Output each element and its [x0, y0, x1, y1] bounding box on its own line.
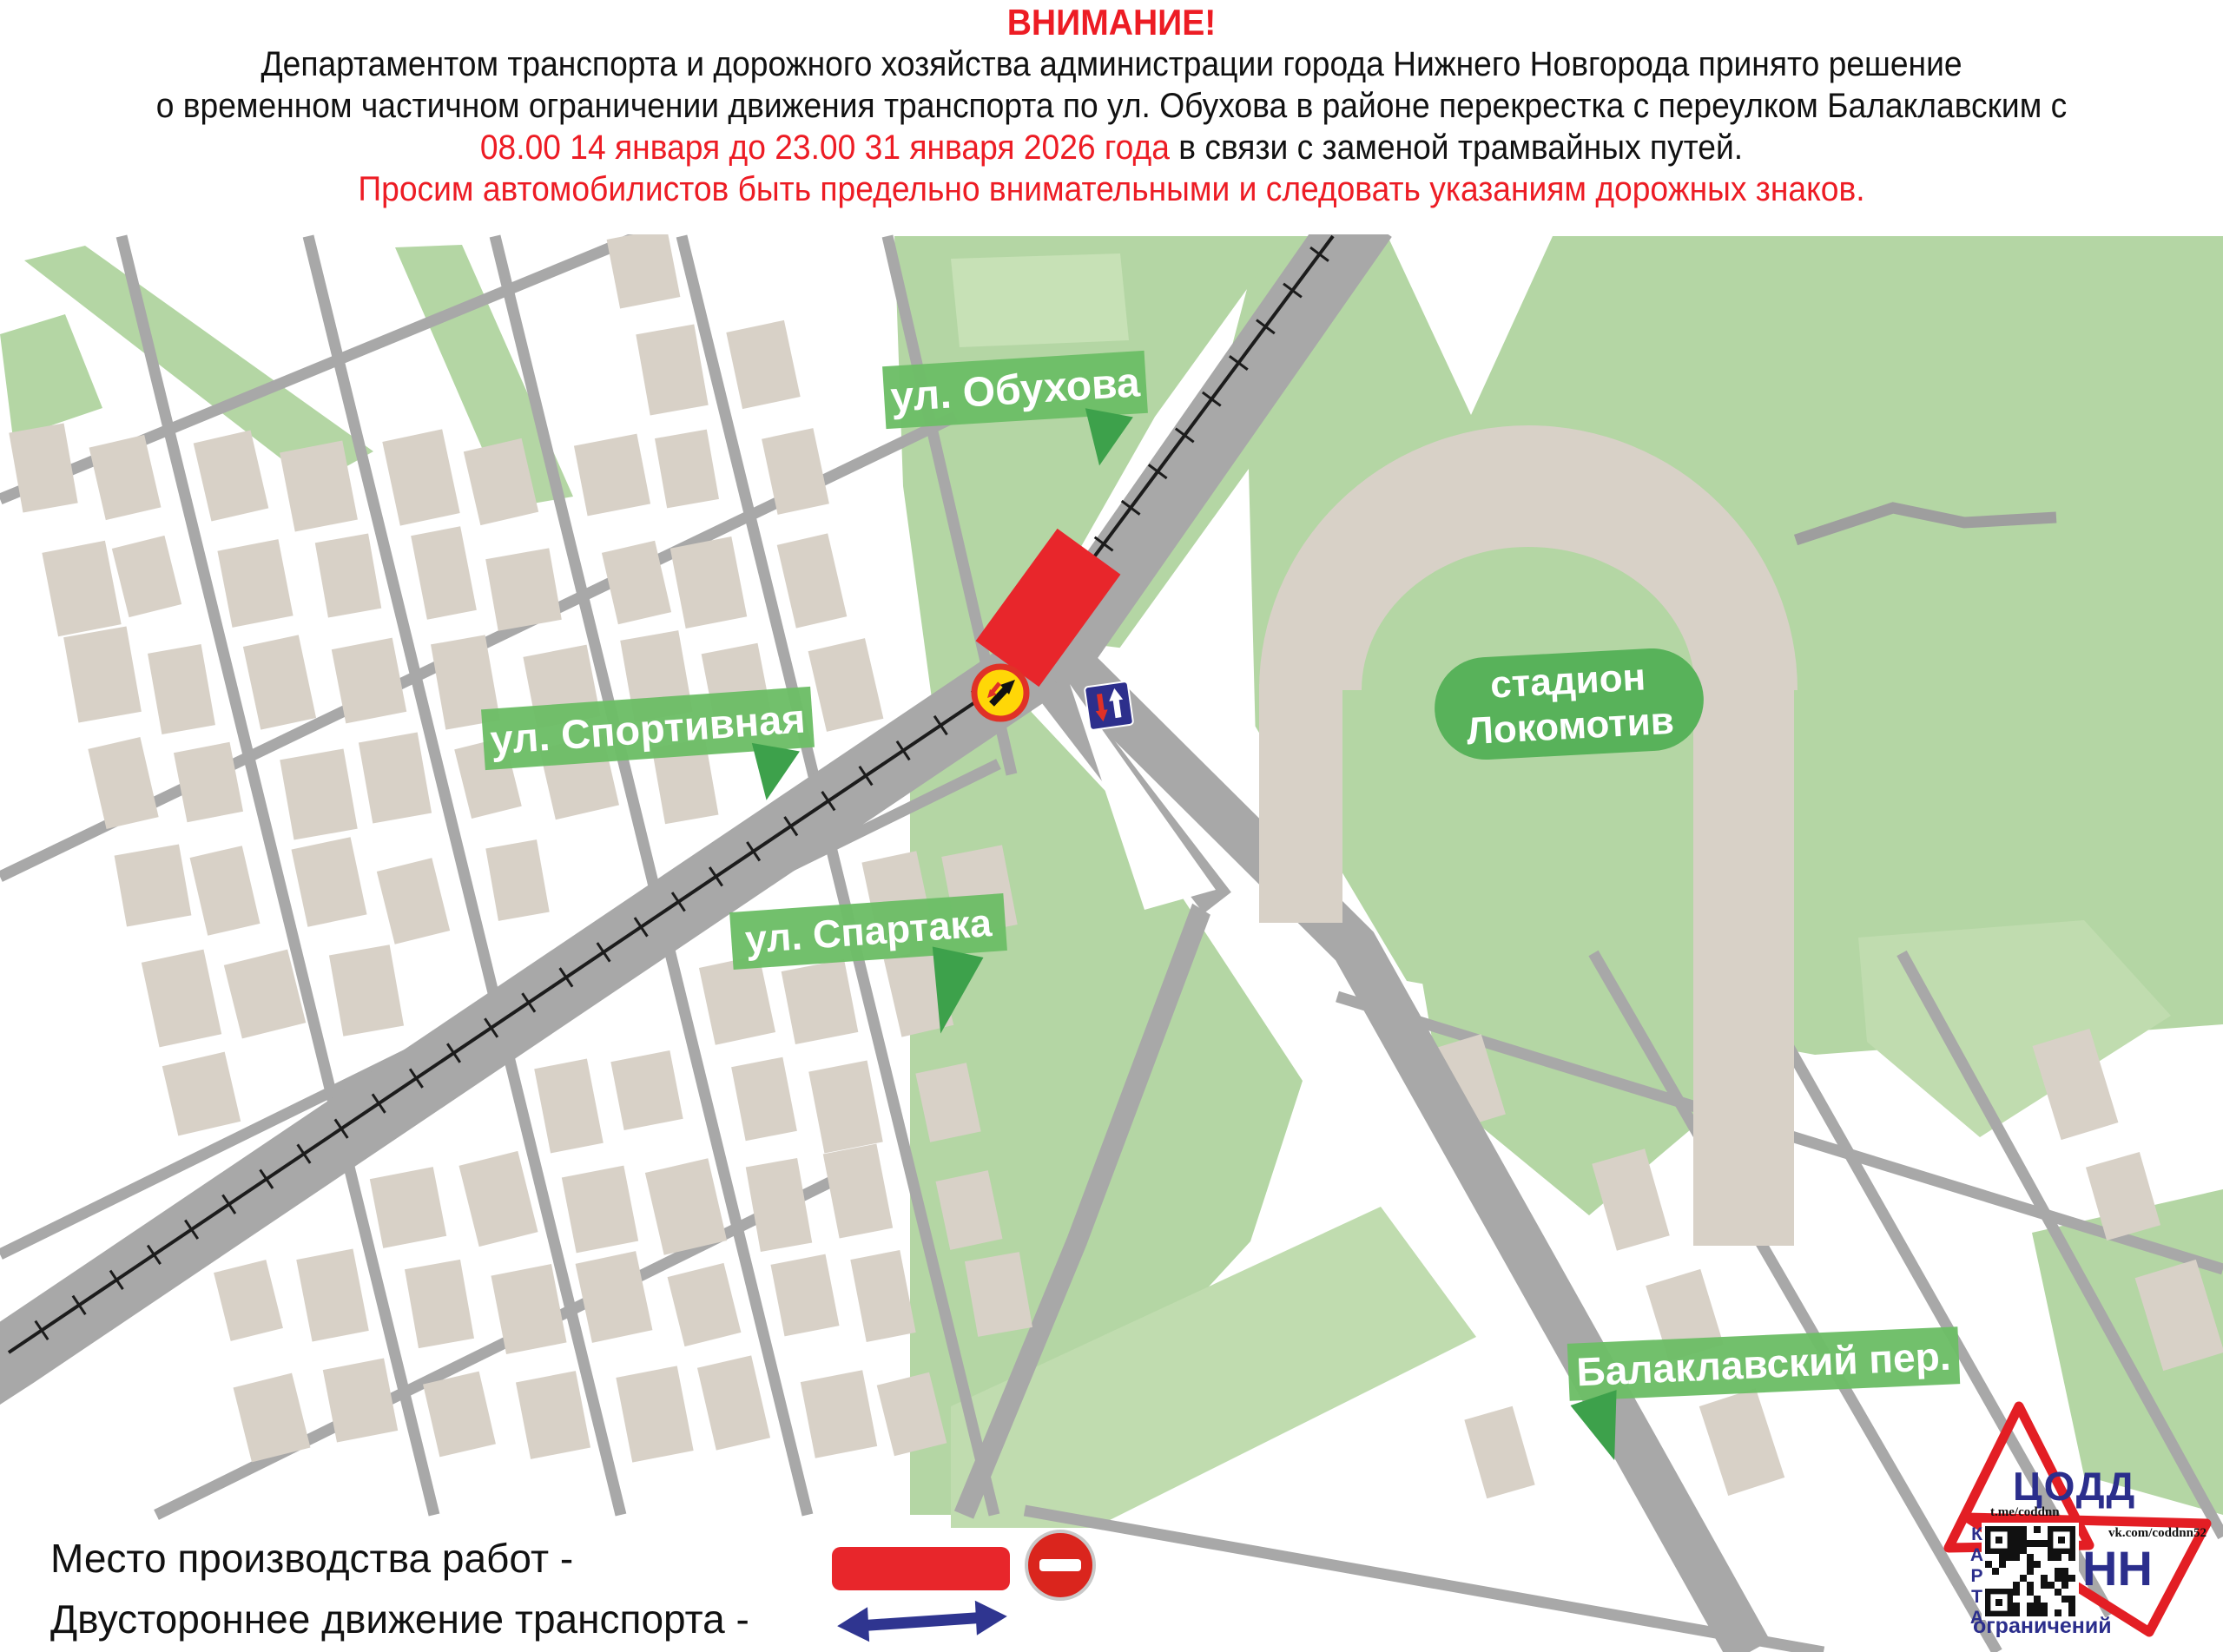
logo-city-text: НН [2082, 1541, 2153, 1596]
qr-module [2055, 1575, 2061, 1582]
building [291, 837, 366, 927]
poster: ВНИМАНИЕ! Департаментом транспорта и дор… [0, 0, 2223, 1652]
building [697, 1355, 770, 1450]
qr-module [2013, 1533, 2020, 1540]
building [115, 845, 192, 927]
building [142, 950, 221, 1048]
building [359, 733, 432, 824]
qr-module [2027, 1603, 2034, 1609]
building [770, 1254, 839, 1337]
building [423, 1372, 496, 1458]
qr-module [2020, 1547, 2027, 1554]
building [801, 1370, 877, 1458]
qr-module [2068, 1554, 2075, 1561]
qr-module [2041, 1582, 2048, 1589]
qr-module [2020, 1533, 2027, 1540]
stadium-label: стадион Локомотив [1432, 646, 1706, 762]
building [1699, 1388, 1784, 1496]
qr-module [2068, 1575, 2075, 1582]
qr-module [2027, 1582, 2034, 1589]
building [370, 1167, 446, 1248]
building [534, 1059, 604, 1154]
building [485, 839, 549, 921]
building [280, 748, 358, 839]
no-entry-bar [1039, 1559, 1081, 1571]
no-entry-icon [1025, 1530, 1096, 1601]
building [668, 1263, 742, 1346]
building [645, 1158, 727, 1254]
building [850, 1250, 915, 1342]
building [89, 435, 162, 520]
two-way-arrow-icon [834, 1595, 1010, 1649]
building [670, 536, 747, 629]
street-banner-label: Балаклавский пер. [1575, 1333, 1951, 1396]
building [516, 1371, 590, 1459]
qr-module [2068, 1609, 2075, 1616]
qr-module [2034, 1609, 2041, 1616]
building [329, 944, 404, 1037]
qr-module [2027, 1540, 2034, 1547]
building [782, 959, 859, 1044]
qr-module [2013, 1540, 2020, 1547]
qr-module [2020, 1526, 2027, 1533]
building [746, 1158, 813, 1252]
building [485, 548, 562, 630]
building [574, 434, 650, 517]
qr-module [2055, 1609, 2061, 1616]
qr-module [2034, 1526, 2041, 1533]
building [731, 1057, 797, 1142]
qr-code [1982, 1523, 2079, 1620]
qr-module [2027, 1568, 2034, 1575]
building [217, 539, 293, 628]
green-strip-tl0 [0, 314, 102, 438]
building [112, 536, 181, 617]
header-line-1: Департаментом транспорта и дорожного хоз… [78, 43, 2146, 85]
building [576, 1251, 653, 1343]
logo-telegram-text: t.me/coddnn [1990, 1505, 2060, 1519]
logo-org-text: ЦОДД [2013, 1464, 2136, 1509]
building [616, 1366, 693, 1462]
banner-pointer [742, 743, 800, 805]
building [296, 1248, 369, 1341]
header-line-3: 08.00 14 января до 23.00 31 января 2026 … [78, 127, 2146, 168]
qr-module [2061, 1582, 2068, 1589]
work-zone-swatch [832, 1547, 1010, 1590]
header-line-2: о временном частичном ограничении движен… [78, 85, 2146, 127]
qr-module [2034, 1596, 2041, 1603]
qr-module [2061, 1568, 2068, 1575]
qr-module [2006, 1554, 2013, 1561]
header: ВНИМАНИЕ! Департаментом транспорта и дор… [0, 2, 2223, 210]
qr-module [2013, 1526, 2020, 1533]
legend-work-site-label: Место производства работ - [50, 1535, 573, 1582]
building [174, 742, 243, 823]
qr-module [2027, 1609, 2034, 1616]
building [9, 423, 77, 512]
qr-module [2061, 1575, 2068, 1582]
qr-module [2055, 1554, 2061, 1561]
qr-module [2013, 1589, 2020, 1596]
qr-module [2055, 1568, 2061, 1575]
building [1592, 1149, 1670, 1250]
legend-two-way-label: Двустороннее движение транспорта - [50, 1596, 749, 1642]
qr-module [2068, 1596, 2075, 1603]
qr-module [2048, 1554, 2055, 1561]
building [214, 1260, 283, 1341]
qr-module [2061, 1596, 2068, 1603]
restriction-dates: 08.00 14 января до 23.00 31 января 2026 … [480, 128, 1170, 167]
building [607, 234, 681, 309]
qr-module [2041, 1575, 2048, 1582]
logo-karta-text: КАРТА [1966, 1524, 1987, 1622]
qr-module [2058, 1537, 2065, 1543]
banner-pointer [1075, 408, 1132, 470]
qr-module [2013, 1554, 2020, 1561]
building [808, 1061, 883, 1154]
qr-module [2027, 1561, 2034, 1568]
qr-module [1995, 1537, 2002, 1543]
two-way-sign-icon [1085, 681, 1133, 730]
attention-title: ВНИМАНИЕ! [78, 2, 2146, 43]
building [194, 430, 269, 521]
building [234, 1373, 311, 1463]
building [458, 1151, 538, 1247]
qr-module [1992, 1568, 1999, 1575]
qr-module [1995, 1599, 2002, 1606]
qr-module [2013, 1603, 2020, 1609]
qr-module [2041, 1603, 2048, 1609]
qr-module [1999, 1561, 2006, 1568]
qr-module [2020, 1540, 2027, 1547]
building [315, 534, 381, 618]
building [42, 541, 121, 636]
qr-module [2048, 1582, 2055, 1589]
building [405, 1260, 474, 1348]
qr-module [2013, 1609, 2020, 1616]
qr-module [2034, 1603, 2041, 1609]
qr-module [2041, 1540, 2048, 1547]
building [610, 1050, 683, 1130]
building [823, 1144, 893, 1239]
logo-vk-text: vk.com/coddnn52 [2108, 1526, 2207, 1540]
qr-module [2027, 1554, 2034, 1561]
qr-module [2034, 1540, 2041, 1547]
building [636, 325, 708, 416]
qr-module [2068, 1603, 2075, 1609]
header-line-4: Просим автомобилистов быть предельно вни… [78, 168, 2146, 210]
qr-module [2034, 1561, 2041, 1568]
qr-module [2013, 1547, 2020, 1554]
building [726, 320, 800, 409]
qr-module [2041, 1609, 2048, 1616]
building [1464, 1406, 1534, 1498]
building [808, 638, 884, 732]
building [190, 846, 261, 936]
building [148, 644, 215, 734]
qr-module [2027, 1589, 2034, 1596]
restriction-reason: в связи с заменой трамвайных путей. [1170, 128, 1743, 167]
qr-module [1999, 1554, 2006, 1561]
building [562, 1166, 638, 1254]
building [162, 1052, 241, 1136]
building [777, 533, 848, 628]
building [382, 429, 459, 525]
building [411, 526, 477, 620]
building [88, 737, 158, 829]
detour-sign-icon [974, 667, 1026, 719]
building [63, 626, 142, 722]
building [243, 635, 316, 729]
qr-module [2055, 1589, 2061, 1596]
building [377, 858, 450, 944]
green-center-inner [951, 253, 1129, 347]
building [655, 430, 719, 509]
qr-module [2013, 1582, 2020, 1589]
qr-module [2020, 1575, 2027, 1582]
